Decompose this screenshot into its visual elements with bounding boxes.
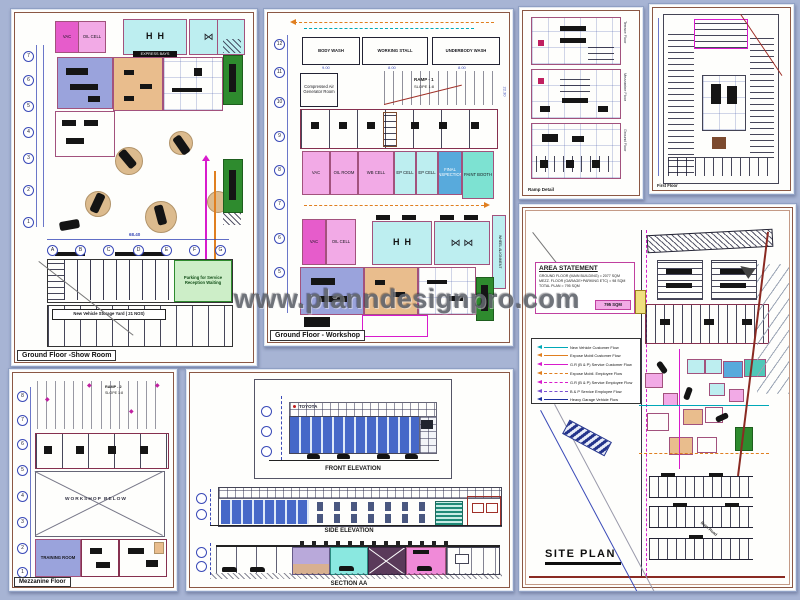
panel-title: Ground Floor - Workshop bbox=[270, 330, 365, 341]
floor-label: Terrace Floor bbox=[623, 21, 627, 43]
level-marker bbox=[261, 406, 272, 417]
furniture bbox=[560, 26, 586, 31]
room-underbody-wash: UNDERBODY WASH bbox=[432, 37, 500, 65]
fixture bbox=[727, 86, 737, 104]
legend-line bbox=[544, 364, 568, 365]
stall-lines bbox=[750, 35, 774, 153]
legend-row: G.R (B & P) Service Employee Flow bbox=[537, 378, 632, 386]
room-office bbox=[119, 539, 167, 577]
bay-chip bbox=[464, 215, 478, 220]
furniture bbox=[62, 120, 76, 126]
room-office bbox=[81, 539, 119, 577]
grid-bubble: 5 bbox=[274, 267, 285, 278]
legend-label: G.R (B & P) Service Employee Flow bbox=[570, 380, 632, 385]
flow-line-orange bbox=[639, 453, 769, 454]
car-icon bbox=[229, 170, 236, 200]
dimension-line bbox=[36, 45, 37, 227]
cell-oil-room: OIL ROOM bbox=[330, 151, 358, 195]
stall-row bbox=[300, 109, 498, 149]
title-underline bbox=[545, 562, 621, 565]
roof-vent-row bbox=[300, 541, 456, 545]
panel-first-floor: First Floor bbox=[648, 3, 795, 195]
level-marker bbox=[196, 547, 207, 558]
flow-arrow-orange-dashed bbox=[294, 22, 494, 23]
bay-vac: VAC bbox=[302, 219, 326, 265]
furniture bbox=[304, 317, 330, 327]
area-line: MEZZ. FLOOR (GARAGE+PARKING ETC) = 98 SQ… bbox=[539, 279, 631, 283]
section-room-cyan bbox=[330, 547, 368, 575]
service-waiting-area: Parking for Service Reception Waiting bbox=[174, 260, 232, 302]
grid-bubble: 4 bbox=[17, 491, 28, 502]
furniture bbox=[140, 84, 152, 89]
arrow-icon bbox=[537, 380, 542, 384]
ramp-lines bbox=[37, 381, 93, 429]
lift-bay: H H bbox=[372, 221, 432, 265]
panel-elevations: TOYOTA FRONT ELEVATION bbox=[185, 368, 514, 592]
bay-chip bbox=[376, 215, 390, 220]
grid-bubble: 6 bbox=[23, 75, 34, 86]
cell-wb: WB CELL bbox=[358, 151, 394, 195]
slope-label: SLOPE 1:8 bbox=[105, 391, 123, 395]
room-express-bays: H H bbox=[123, 19, 187, 55]
legend-row: New Vehicle Customer Flow bbox=[537, 343, 619, 351]
car-icon bbox=[377, 454, 390, 459]
flow-arrow-orange-dashed bbox=[304, 205, 484, 206]
ladder-block bbox=[657, 260, 703, 300]
site-room-pink bbox=[729, 389, 744, 402]
sign-board bbox=[421, 420, 433, 429]
parked-car-icon bbox=[725, 503, 739, 507]
panel-title: Mezzanine Floor bbox=[14, 577, 71, 587]
cell-vac: VAC bbox=[302, 151, 330, 195]
legend-line bbox=[544, 347, 568, 348]
furniture bbox=[124, 70, 134, 75]
grid-bubble: 3 bbox=[23, 153, 34, 164]
flow-arrowhead-orange bbox=[484, 202, 490, 208]
grid-bubble: 5 bbox=[23, 101, 34, 112]
ramp-lines bbox=[560, 76, 590, 92]
car-icon bbox=[339, 566, 354, 571]
legend-row: Expose Mobil Customer Flow bbox=[537, 351, 621, 359]
cad-sheet-collage: 7 6 5 4 3 2 1 VAC OIL CELL H H EXPRESS B… bbox=[0, 0, 800, 600]
window bbox=[472, 503, 484, 513]
panel-title: First Floor bbox=[657, 183, 678, 188]
legend-label: B & P Service Employee Flow bbox=[570, 389, 622, 394]
furniture bbox=[88, 96, 100, 102]
dimension-text: 8.00 bbox=[458, 65, 466, 70]
car-icon bbox=[229, 64, 236, 92]
parked-car-icon bbox=[709, 473, 723, 477]
section-title: SECTION AA bbox=[196, 581, 502, 587]
legend-line bbox=[544, 391, 568, 392]
grid-bubble: 7 bbox=[23, 51, 34, 62]
legend-line bbox=[544, 373, 568, 374]
arrow-icon bbox=[537, 397, 542, 401]
grid-bubble: 6 bbox=[17, 439, 28, 450]
car-icon bbox=[683, 386, 693, 400]
void-label: WORKSHOP BELOW bbox=[65, 497, 127, 502]
legend-row: G.R (B & P) Service Customer Flow bbox=[537, 360, 632, 368]
slope-label: SLOPE 1:8 bbox=[414, 84, 434, 89]
section-room-pink bbox=[406, 547, 446, 575]
legend-label: Heavy Garage Vehicle Flow bbox=[570, 397, 618, 402]
grid-bubble: A bbox=[47, 245, 58, 256]
site-room-blue bbox=[723, 361, 743, 378]
site-boundary-bottom bbox=[529, 576, 785, 578]
car-icon bbox=[307, 454, 320, 459]
sign-chip bbox=[413, 550, 429, 554]
section-end-bay bbox=[446, 547, 500, 575]
room-body-wash: BODY WASH bbox=[302, 37, 360, 65]
grid-bubble: 7 bbox=[17, 415, 28, 426]
area-statement-title: AREA STATEMENT bbox=[539, 265, 631, 272]
stair-icon bbox=[383, 112, 397, 147]
parked-car-icon bbox=[673, 503, 687, 507]
grid-bubble: 12 bbox=[274, 39, 285, 50]
side-elevation-box: SIDE ELEVATION bbox=[196, 483, 502, 535]
cell-ep-2: EP CELL bbox=[416, 151, 438, 195]
ramp-label: RAMP - 2 bbox=[105, 385, 122, 389]
furniture bbox=[542, 134, 558, 142]
window-row bbox=[317, 514, 429, 523]
bay-chip bbox=[402, 215, 416, 220]
stair-icon bbox=[712, 137, 726, 149]
office-row bbox=[55, 111, 115, 157]
wash-lane-green bbox=[223, 159, 243, 213]
grid-bubble: 4 bbox=[23, 127, 34, 138]
panel-title: Ramp Detail bbox=[528, 187, 554, 192]
level-marker bbox=[196, 561, 207, 572]
side-elevation-title: SIDE ELEVATION bbox=[196, 528, 502, 534]
grid-bubble: 9 bbox=[274, 131, 285, 142]
section-room-mauve bbox=[292, 547, 330, 575]
room-purple-office bbox=[57, 57, 113, 109]
fixture bbox=[711, 84, 721, 104]
ramp-marker-icon: ◆ bbox=[87, 383, 92, 389]
grid-bubble: B bbox=[75, 245, 86, 256]
arrow-icon bbox=[537, 371, 542, 375]
two-post-lift-icon: H H bbox=[393, 238, 411, 248]
fixture bbox=[566, 160, 574, 168]
ramp-block bbox=[694, 19, 748, 49]
dimension-line bbox=[658, 18, 659, 176]
plan-outline bbox=[663, 14, 779, 184]
site-room-cyan bbox=[687, 359, 705, 374]
dimension-line bbox=[30, 387, 31, 577]
fixture bbox=[704, 319, 714, 325]
scissor-lift-icon: ⋈ ⋈ bbox=[451, 238, 474, 249]
mini-plan-terrace bbox=[531, 17, 621, 65]
grid-bubble: 8 bbox=[17, 391, 28, 402]
wash-lane-green bbox=[223, 55, 243, 105]
room-reception bbox=[163, 57, 223, 111]
room-generator: Compressed Air Generator Room bbox=[300, 73, 338, 107]
cell-final-inspection: FINAL INSPECTION bbox=[438, 151, 462, 195]
grid-bubble: 8 bbox=[274, 165, 285, 176]
section-box: SECTION AA bbox=[196, 539, 502, 587]
flow-arrow-cyan-dashed bbox=[304, 28, 474, 29]
room-vac: VAC bbox=[55, 21, 79, 53]
ramp-marker-icon: ◆ bbox=[155, 383, 160, 389]
stall-row bbox=[668, 157, 774, 176]
dimension-text: 68.40 bbox=[129, 232, 140, 237]
ground-line bbox=[210, 525, 502, 526]
area-line: GROUND FLOOR (MAIN BUILDING) = 2077 SQM bbox=[539, 274, 631, 278]
fixture bbox=[666, 283, 692, 288]
core-block bbox=[702, 75, 746, 131]
parking-row bbox=[649, 538, 753, 560]
fixture-tan bbox=[154, 542, 164, 554]
site-room-cyan bbox=[705, 359, 722, 374]
car-icon bbox=[222, 567, 237, 572]
building-room-cluster bbox=[639, 349, 775, 471]
panel-site-plan: AREA STATEMENT GROUND FLOOR (MAIN BUILDI… bbox=[518, 203, 797, 592]
site-room bbox=[647, 413, 669, 431]
level-marker bbox=[196, 509, 207, 520]
furniture bbox=[66, 138, 84, 144]
area-highlight: 795 SQM bbox=[595, 300, 631, 310]
legend-label: G.R (B & P) Service Customer Flow bbox=[570, 362, 632, 367]
grid-bubble: C bbox=[103, 245, 114, 256]
panel-ramp-detail: Terrace Floor Mezzanine Floor Ground Flo… bbox=[518, 6, 644, 200]
furniture bbox=[560, 38, 586, 43]
workbench bbox=[367, 122, 375, 129]
parked-car-icon bbox=[661, 473, 675, 477]
legend-label: Expose Mobil. Employee Flow bbox=[570, 371, 622, 376]
wheel-alignment-bay: WHEEL ALIGNMENT bbox=[492, 215, 506, 289]
fixture bbox=[540, 160, 548, 168]
furniture bbox=[90, 548, 102, 554]
level-marker bbox=[261, 426, 272, 437]
room-oil-cell: OIL CELL bbox=[78, 21, 106, 53]
fixture bbox=[592, 160, 600, 168]
ground-hatch bbox=[210, 573, 502, 579]
glass-section bbox=[221, 500, 309, 524]
grid-bubble: 10 bbox=[274, 97, 285, 108]
stall-lines bbox=[668, 33, 694, 173]
furniture bbox=[84, 120, 98, 126]
marker bbox=[538, 78, 544, 84]
legend-line bbox=[544, 399, 568, 400]
flow-arrowhead-magenta bbox=[202, 155, 210, 161]
furniture bbox=[540, 106, 550, 112]
bay-chip bbox=[440, 215, 454, 220]
cell-ep-1: EP CELL bbox=[394, 151, 416, 195]
grid-bubble: 3 bbox=[17, 517, 28, 528]
cell-paint-booth: PAINT BOOTH bbox=[462, 151, 494, 199]
car-icon bbox=[417, 566, 432, 571]
workbench bbox=[44, 446, 52, 454]
fixture bbox=[720, 283, 746, 288]
parking-row bbox=[649, 476, 753, 498]
furniture bbox=[66, 68, 88, 75]
workbench bbox=[140, 446, 148, 454]
site-room bbox=[697, 437, 717, 453]
dimension-text: 22.30 bbox=[503, 86, 508, 96]
ramp-marker-icon: ◆ bbox=[129, 409, 134, 415]
arrow-icon bbox=[537, 345, 542, 349]
side-building bbox=[218, 487, 502, 527]
legend-row: Heavy Garage Vehicle Flow bbox=[537, 395, 618, 403]
site-plan-title: SITE PLAN bbox=[545, 548, 616, 560]
mini-plan-ground bbox=[531, 123, 621, 179]
storage-yard: New Vehicle Storage Yard ( 21 NOS) bbox=[47, 305, 233, 347]
flow-arrow-magenta bbox=[205, 159, 207, 265]
panel-mezzanine-floor: 8 7 6 5 4 3 2 1 ◆ ◆ ◆ ◆ RAMP - 2 SLOPE 1… bbox=[8, 368, 178, 592]
top-grid-band bbox=[219, 488, 501, 499]
front-elevation-title: FRONT ELEVATION bbox=[255, 466, 451, 472]
level-marker bbox=[196, 493, 207, 504]
grid-bubble: D bbox=[133, 245, 144, 256]
legend-line bbox=[544, 355, 568, 356]
stall-band bbox=[645, 304, 769, 344]
arrow-icon bbox=[537, 353, 542, 357]
dimension-line bbox=[43, 45, 44, 227]
service-parking-strip: Parking for Service Reception Waiting bbox=[47, 259, 233, 303]
level-line bbox=[210, 543, 211, 575]
legend-row: B & P Service Employee Flow bbox=[537, 387, 622, 395]
grid-bubble: 5 bbox=[17, 465, 28, 476]
dimension-text: 9.00 bbox=[322, 65, 330, 70]
end-wing bbox=[467, 496, 501, 526]
furniture bbox=[124, 96, 134, 101]
marker bbox=[538, 40, 544, 46]
grid-bubble: F bbox=[189, 245, 200, 256]
workbench bbox=[439, 122, 447, 129]
legend-label: Expose Mobil Customer Flow bbox=[570, 353, 621, 358]
ramp-label: RAMP - 1 bbox=[414, 77, 434, 82]
fixture bbox=[660, 319, 670, 325]
grid-bubble: 2 bbox=[23, 185, 34, 196]
furniture bbox=[562, 98, 588, 103]
toyota-logo-icon bbox=[293, 405, 296, 408]
site-room-cyan bbox=[709, 383, 725, 396]
level-marker bbox=[261, 446, 272, 457]
stall-lines bbox=[536, 156, 616, 172]
front-elevation-box: TOYOTA FRONT ELEVATION bbox=[254, 379, 452, 479]
glass-facade bbox=[289, 416, 421, 454]
two-post-lift-icon: H H bbox=[146, 32, 164, 42]
yard-label: New Vehicle Storage Yard ( 21 NOS) bbox=[52, 309, 166, 320]
dimension-line bbox=[287, 35, 288, 313]
site-room-tan bbox=[683, 409, 703, 425]
workbench bbox=[76, 446, 84, 454]
flow-line-cyan bbox=[639, 405, 769, 406]
furniture bbox=[70, 84, 98, 90]
grid-bubble: 6 bbox=[274, 233, 285, 244]
hatch-strip bbox=[223, 213, 241, 225]
flow-legend: New Vehicle Customer Flow Expose Mobil C… bbox=[531, 338, 641, 404]
flow-line-magenta bbox=[679, 349, 680, 469]
ramp-lines bbox=[588, 46, 614, 60]
site-room-pink bbox=[645, 373, 663, 388]
arrow-icon bbox=[537, 389, 542, 393]
watermark: www.planndesignpro.com bbox=[234, 284, 580, 315]
level-line bbox=[210, 489, 211, 525]
car-icon bbox=[337, 454, 350, 459]
car-icon bbox=[250, 567, 265, 572]
furniture bbox=[128, 548, 144, 554]
grid-bubble: E bbox=[161, 245, 172, 256]
furniture bbox=[146, 560, 158, 567]
office-row bbox=[35, 433, 169, 469]
grid-bubble: G bbox=[215, 245, 226, 256]
mini-plan-mezzanine bbox=[531, 69, 621, 119]
floor-label: Mezzanine Floor bbox=[623, 73, 627, 101]
furniture bbox=[194, 68, 202, 76]
floor-label: Ground Floor bbox=[623, 129, 627, 151]
brand-sign: TOYOTA bbox=[299, 404, 317, 409]
panel-title: Ground Floor -Show Room bbox=[17, 350, 116, 361]
grid-bubble: 1 bbox=[23, 217, 34, 228]
flow-arrowhead-orange bbox=[290, 19, 296, 25]
room-working-stall: WORKING STALL bbox=[362, 37, 428, 65]
car-icon bbox=[405, 454, 418, 459]
level-line bbox=[281, 396, 282, 460]
kiosk-yellow bbox=[635, 290, 646, 314]
hatch-strip bbox=[223, 39, 241, 53]
grid-bubble: 11 bbox=[274, 67, 285, 78]
grid-bubble: 2 bbox=[17, 543, 28, 554]
dimension-text: 8.00 bbox=[388, 65, 396, 70]
furniture bbox=[598, 106, 608, 112]
room-training: TRAINING ROOM bbox=[35, 539, 81, 577]
small-box bbox=[455, 554, 469, 564]
roller-shutter bbox=[435, 501, 463, 526]
grid-bubble: 7 bbox=[274, 199, 285, 210]
fixture bbox=[742, 319, 752, 325]
panel-ground-floor-showroom: 7 6 5 4 3 2 1 VAC OIL CELL H H EXPRESS B… bbox=[10, 8, 258, 367]
canopy-outline bbox=[362, 315, 428, 337]
window-row bbox=[317, 502, 429, 511]
arrow-icon bbox=[537, 362, 542, 366]
furniture bbox=[172, 88, 202, 92]
ground-line bbox=[269, 460, 439, 461]
furniture bbox=[572, 136, 584, 142]
ramp-marker-icon: ◆ bbox=[45, 397, 50, 403]
workbench bbox=[311, 122, 319, 129]
bay-oil-cell: OIL CELL bbox=[326, 219, 356, 265]
workbench bbox=[411, 122, 419, 129]
parked-car-icon bbox=[689, 535, 703, 539]
scissor-bay: ⋈ ⋈ bbox=[434, 221, 490, 265]
legend-label: New Vehicle Customer Flow bbox=[570, 345, 619, 350]
section-room-dark bbox=[368, 547, 406, 575]
room-lounge bbox=[113, 57, 163, 111]
workbench bbox=[108, 446, 116, 454]
workbench bbox=[339, 122, 347, 129]
dimension-line bbox=[47, 239, 229, 240]
workbench bbox=[471, 122, 479, 129]
window bbox=[486, 503, 498, 513]
fixture bbox=[666, 269, 692, 274]
legend-row: Expose Mobil. Employee Flow bbox=[537, 369, 622, 377]
legend-line bbox=[544, 382, 568, 383]
furniture bbox=[96, 562, 110, 568]
